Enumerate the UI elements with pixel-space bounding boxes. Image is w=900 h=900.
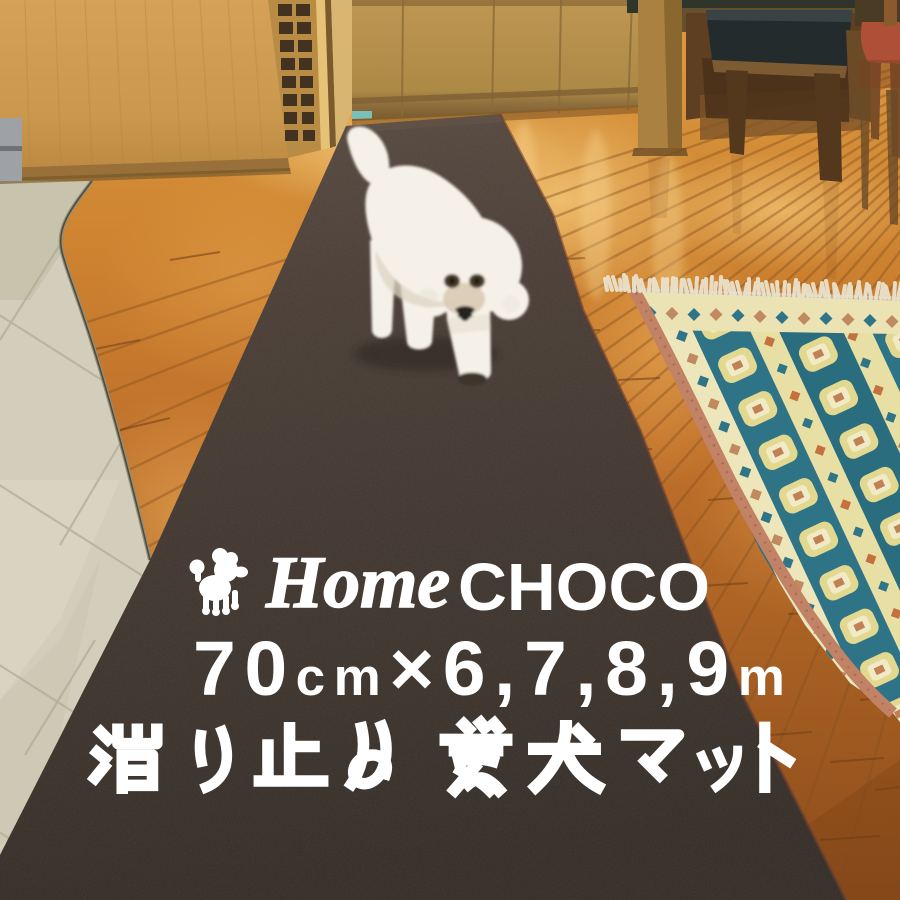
svg-text:Home: Home (265, 542, 450, 624)
svg-text:CHOCO: CHOCO (458, 550, 710, 625)
svg-text:70cm×6,7,8,9m: 70cm×6,7,8,9m (193, 626, 793, 712)
